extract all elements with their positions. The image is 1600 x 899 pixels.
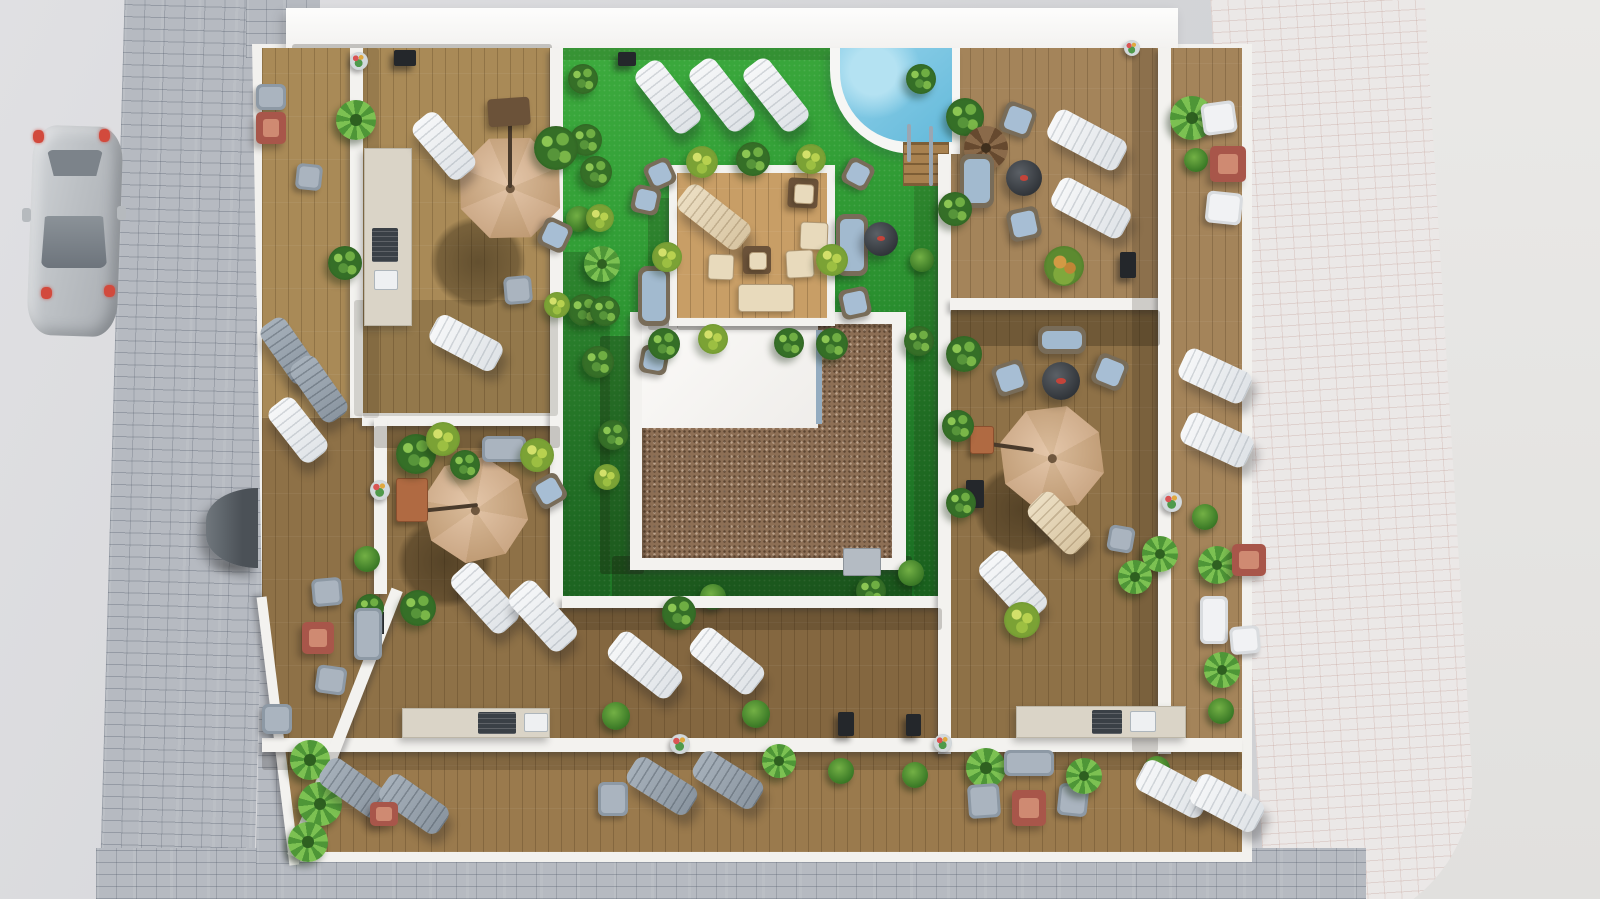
plant-palm	[584, 246, 620, 282]
wall-d	[938, 154, 951, 754]
gray-chair	[311, 577, 343, 608]
gray-chair	[314, 664, 348, 696]
plant-green	[450, 450, 480, 480]
plant-green	[816, 328, 848, 360]
plant-yellow	[796, 144, 826, 174]
plant-yellow	[686, 146, 718, 178]
pool-ladder-rail	[929, 126, 933, 186]
grill-table	[487, 97, 531, 128]
plant-green	[400, 590, 436, 626]
car-light	[104, 285, 115, 297]
flower-pot	[1162, 492, 1182, 512]
white-chair	[1229, 625, 1261, 656]
wicker-chair	[1005, 205, 1043, 243]
plant-green	[648, 328, 680, 360]
cushion-beige	[749, 252, 767, 270]
car-light	[99, 129, 110, 142]
bush	[354, 546, 380, 572]
cushion-beige	[793, 183, 814, 204]
plant-green	[938, 192, 972, 226]
tray-table	[370, 802, 398, 826]
plant-palm	[288, 822, 328, 862]
ottoman	[503, 275, 533, 305]
wicker-chair	[837, 285, 873, 321]
bbq-grill	[1092, 710, 1122, 734]
plant-palm	[762, 744, 796, 778]
roof-vent	[838, 712, 854, 736]
gray-chair	[598, 782, 628, 816]
umb-arm	[508, 118, 512, 188]
wall-divider	[262, 738, 1242, 752]
plant-green	[736, 142, 770, 176]
plant-green	[662, 596, 696, 630]
bush	[828, 758, 854, 784]
plant-yellow	[544, 292, 570, 318]
plant-green	[580, 156, 612, 188]
white-chair	[1204, 190, 1243, 226]
gray-sofa	[354, 608, 382, 660]
side-stool	[970, 426, 994, 454]
roof-vent	[618, 52, 636, 66]
plant-yellow	[426, 422, 460, 456]
bush	[898, 560, 924, 586]
plant-yellow	[816, 244, 848, 276]
plant-palm	[336, 100, 376, 140]
plant-autumn	[1044, 246, 1084, 286]
plant-yellow	[594, 464, 620, 490]
wall-f	[1158, 48, 1171, 754]
deck-bench	[738, 284, 794, 312]
wicker-chair	[629, 183, 662, 216]
car-mirror	[117, 206, 126, 220]
bush	[1192, 504, 1218, 530]
wall-e	[950, 298, 1160, 310]
flower-pot	[934, 734, 952, 752]
fire-table	[302, 622, 334, 654]
wall-lawn-bottom	[562, 596, 942, 608]
white-sofa	[1200, 596, 1228, 644]
gray-sofa	[256, 84, 286, 110]
round-table	[864, 222, 898, 256]
bush	[1184, 148, 1208, 172]
plant-green	[906, 64, 936, 94]
plant-yellow	[1004, 602, 1040, 638]
flower-pot	[370, 480, 390, 500]
car-windshield	[41, 216, 107, 268]
ottoman	[1106, 524, 1136, 554]
flower-pot	[1124, 40, 1140, 56]
pool-ladder-rail	[907, 124, 911, 162]
plant-green	[774, 328, 804, 358]
plant-green	[598, 420, 628, 450]
flower-pot	[670, 734, 690, 754]
plant-green	[942, 410, 974, 442]
car-rear-window	[47, 150, 103, 176]
umbrella-base	[396, 478, 428, 522]
plant-green	[568, 64, 598, 94]
bush	[902, 762, 928, 788]
plant-green	[946, 336, 982, 372]
bush	[910, 248, 934, 272]
round-table	[1006, 160, 1042, 196]
pavement-left	[99, 0, 278, 899]
gray-chair	[967, 783, 1001, 819]
plant-green	[534, 126, 578, 170]
bbq-grill	[372, 228, 398, 262]
bush	[742, 700, 770, 728]
gray-sofa	[1004, 750, 1054, 776]
plant-palm	[1198, 546, 1236, 584]
plant-palm	[1204, 652, 1240, 688]
roof-vent	[1120, 252, 1136, 278]
bush	[1208, 698, 1234, 724]
car-light	[41, 287, 52, 299]
bush	[602, 702, 630, 730]
plant-green	[328, 246, 362, 280]
gray-chair	[295, 163, 324, 192]
shade	[1132, 48, 1158, 752]
white-chair	[1200, 100, 1238, 136]
car-light	[33, 130, 44, 143]
plant-green	[904, 326, 934, 356]
roof-vent	[906, 714, 921, 736]
plant-green	[590, 296, 620, 326]
sink	[1130, 711, 1156, 732]
gray-chair	[262, 704, 292, 734]
plant-green	[582, 346, 614, 378]
flower-pot	[350, 52, 368, 70]
fire-table	[1232, 544, 1266, 576]
plant-palm	[1118, 560, 1152, 594]
plant-yellow	[520, 438, 554, 472]
cushion-beige	[708, 254, 735, 281]
plant-palm	[1066, 758, 1102, 794]
plant-yellow	[652, 242, 682, 272]
plant-palm	[966, 748, 1006, 788]
shade	[562, 608, 942, 630]
wicker-sofa	[1038, 326, 1086, 354]
sink	[374, 270, 398, 290]
cushion-beige	[785, 249, 814, 278]
car-mirror	[22, 208, 31, 222]
rooftop-aerial-render	[0, 0, 1600, 899]
sink	[524, 713, 548, 732]
fire-bowl	[1042, 362, 1080, 400]
fire-table	[1210, 146, 1246, 182]
bbq-grill	[478, 712, 516, 734]
plant-green	[946, 488, 976, 518]
plant-yellow	[586, 204, 614, 232]
roof-vent	[394, 50, 416, 66]
wicker-sofa	[638, 266, 670, 326]
fire-table	[1012, 790, 1046, 826]
roof-vent	[843, 548, 881, 576]
fire-table	[256, 112, 286, 144]
plant-yellow	[698, 324, 728, 354]
